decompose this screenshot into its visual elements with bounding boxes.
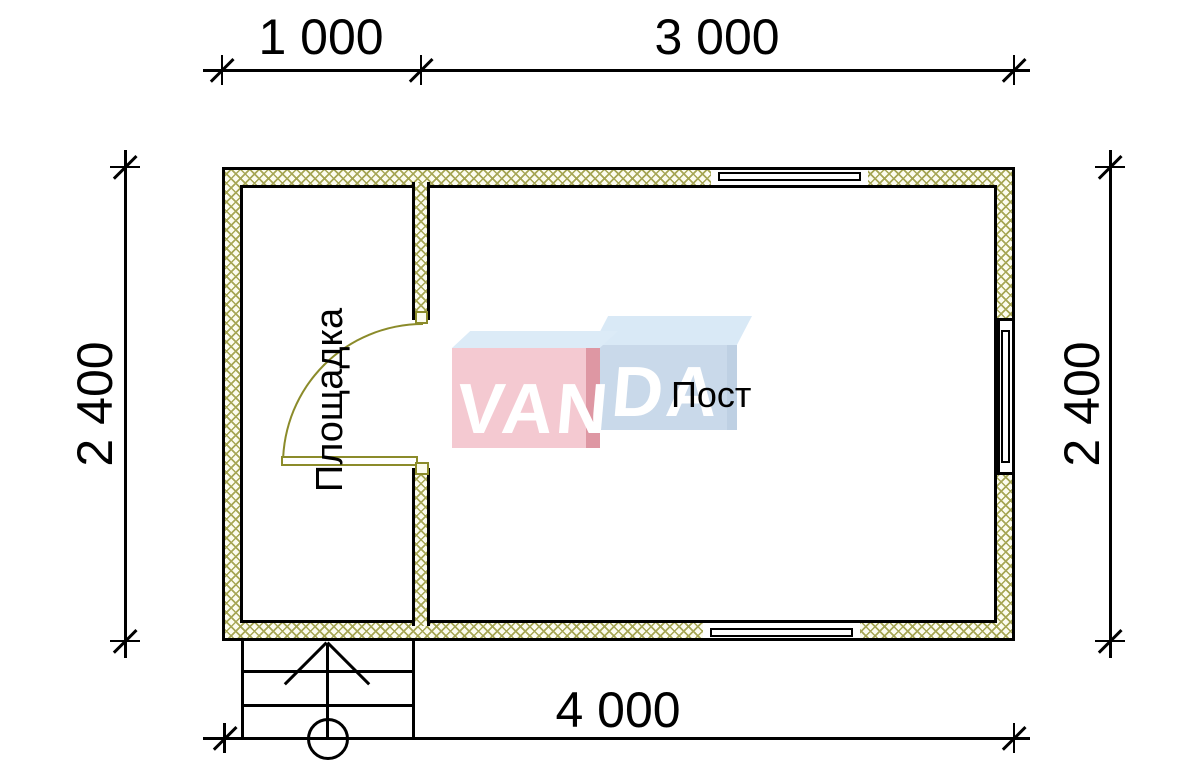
window-right-frame bbox=[1001, 330, 1010, 463]
dimension-line-left bbox=[124, 150, 127, 658]
dimension-label-2400-right: 2 400 bbox=[1057, 304, 1107, 504]
room-label-platform: Площадка bbox=[305, 290, 355, 510]
partition-wall-upper bbox=[412, 182, 430, 320]
dimension-label-1000: 1 000 bbox=[221, 8, 421, 66]
stairs-right-edge bbox=[412, 641, 415, 738]
window-bottom-outer-line bbox=[703, 638, 860, 641]
stairs-arrowhead-left-leg bbox=[284, 641, 327, 684]
stairs-left-edge bbox=[241, 641, 244, 738]
dimension-line-top bbox=[203, 69, 1030, 72]
stairs-entry-circle bbox=[307, 718, 349, 760]
window-right-cap-bottom bbox=[997, 472, 1015, 475]
window-bottom-frame bbox=[710, 628, 853, 637]
stairs-arrowhead-right-leg bbox=[326, 641, 369, 684]
floor-plan-canvas: 1 000 3 000 2 400 2 400 4 000 VAN DA bbox=[0, 0, 1200, 772]
dimension-label-3000: 3 000 bbox=[617, 8, 817, 66]
watermark-pink-top-face bbox=[452, 331, 618, 348]
dimension-label-4000: 4 000 bbox=[518, 681, 718, 739]
window-right-cap-top bbox=[997, 318, 1015, 321]
dimension-label-2400-left: 2 400 bbox=[70, 304, 120, 504]
room-label-post: Пост bbox=[671, 374, 751, 416]
watermark-blue-top-face bbox=[593, 316, 752, 345]
partition-wall-lower bbox=[412, 468, 430, 626]
door-jamb-top bbox=[415, 311, 428, 324]
window-top-outer-line bbox=[711, 167, 868, 170]
watermark-text-van: VAN bbox=[454, 374, 614, 445]
door-jamb-bottom bbox=[415, 462, 429, 475]
window-right-outer-line bbox=[1012, 318, 1015, 475]
window-top-frame bbox=[718, 172, 861, 181]
window-right-inner-line bbox=[997, 318, 1000, 475]
